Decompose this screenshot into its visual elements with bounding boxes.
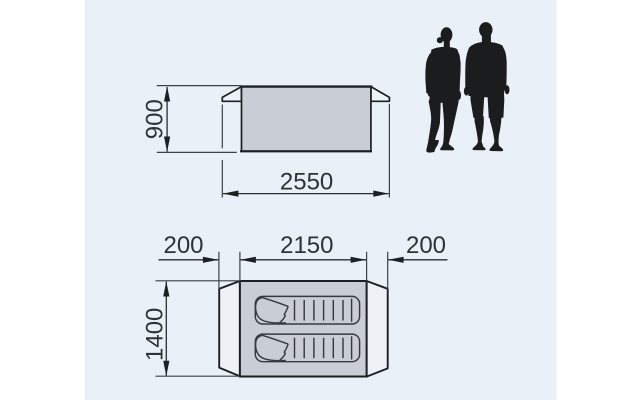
svg-text:200: 200: [406, 232, 446, 259]
svg-text:200: 200: [163, 232, 203, 259]
svg-text:2150: 2150: [280, 232, 333, 259]
svg-text:1400: 1400: [142, 308, 169, 361]
svg-text:900: 900: [142, 99, 169, 139]
svg-text:2550: 2550: [280, 168, 333, 195]
